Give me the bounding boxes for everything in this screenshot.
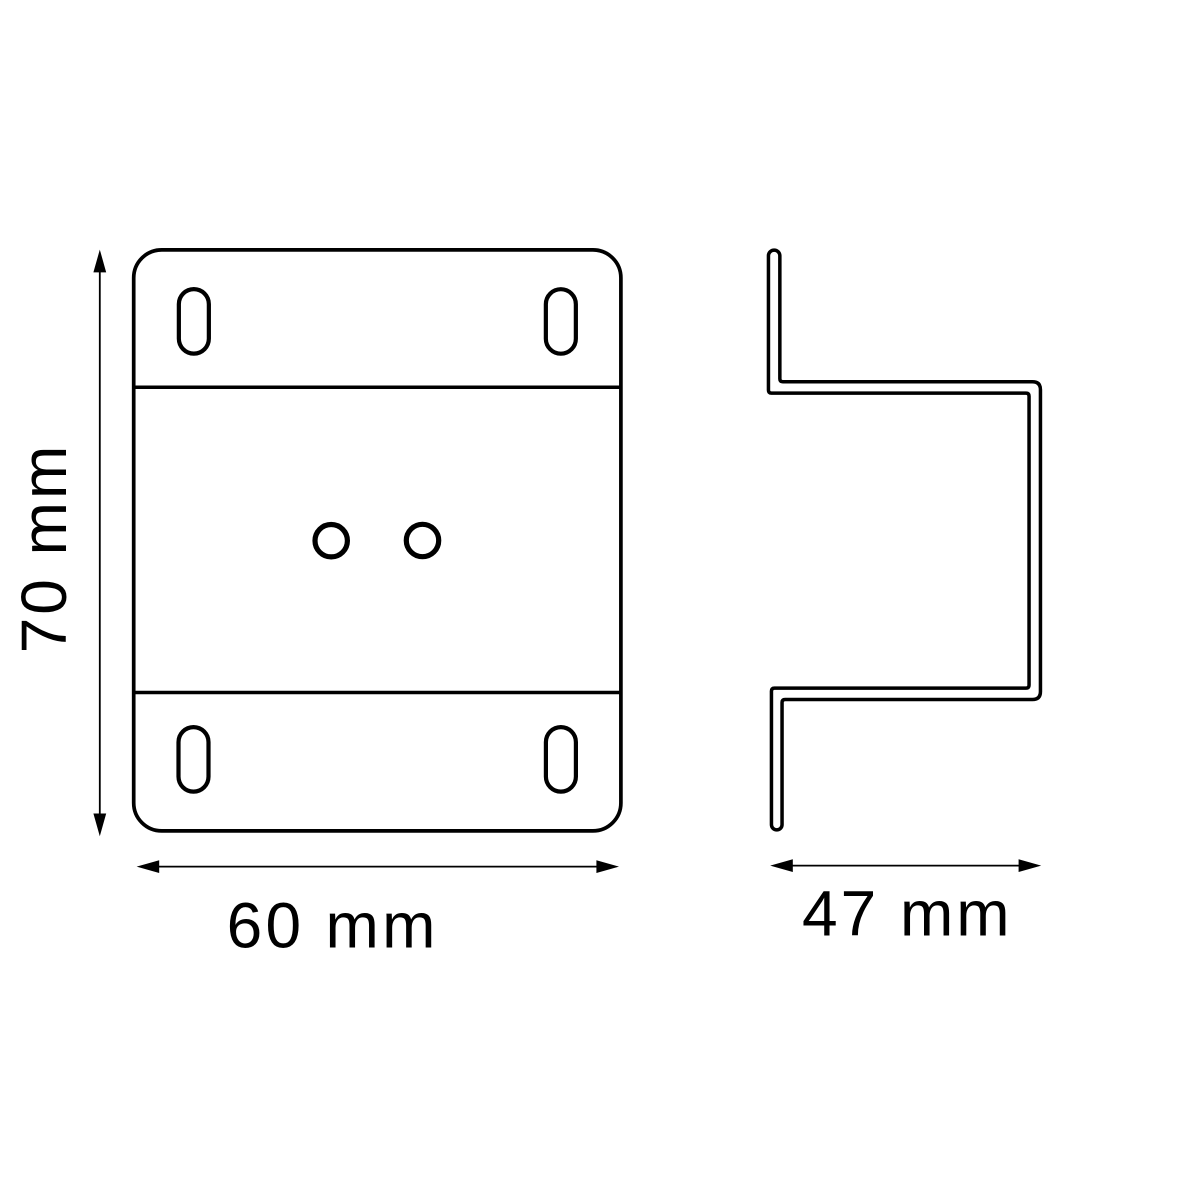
- svg-text:47 mm: 47 mm: [802, 878, 1013, 950]
- svg-text:70 mm: 70 mm: [8, 443, 80, 654]
- svg-text:60 mm: 60 mm: [227, 890, 439, 962]
